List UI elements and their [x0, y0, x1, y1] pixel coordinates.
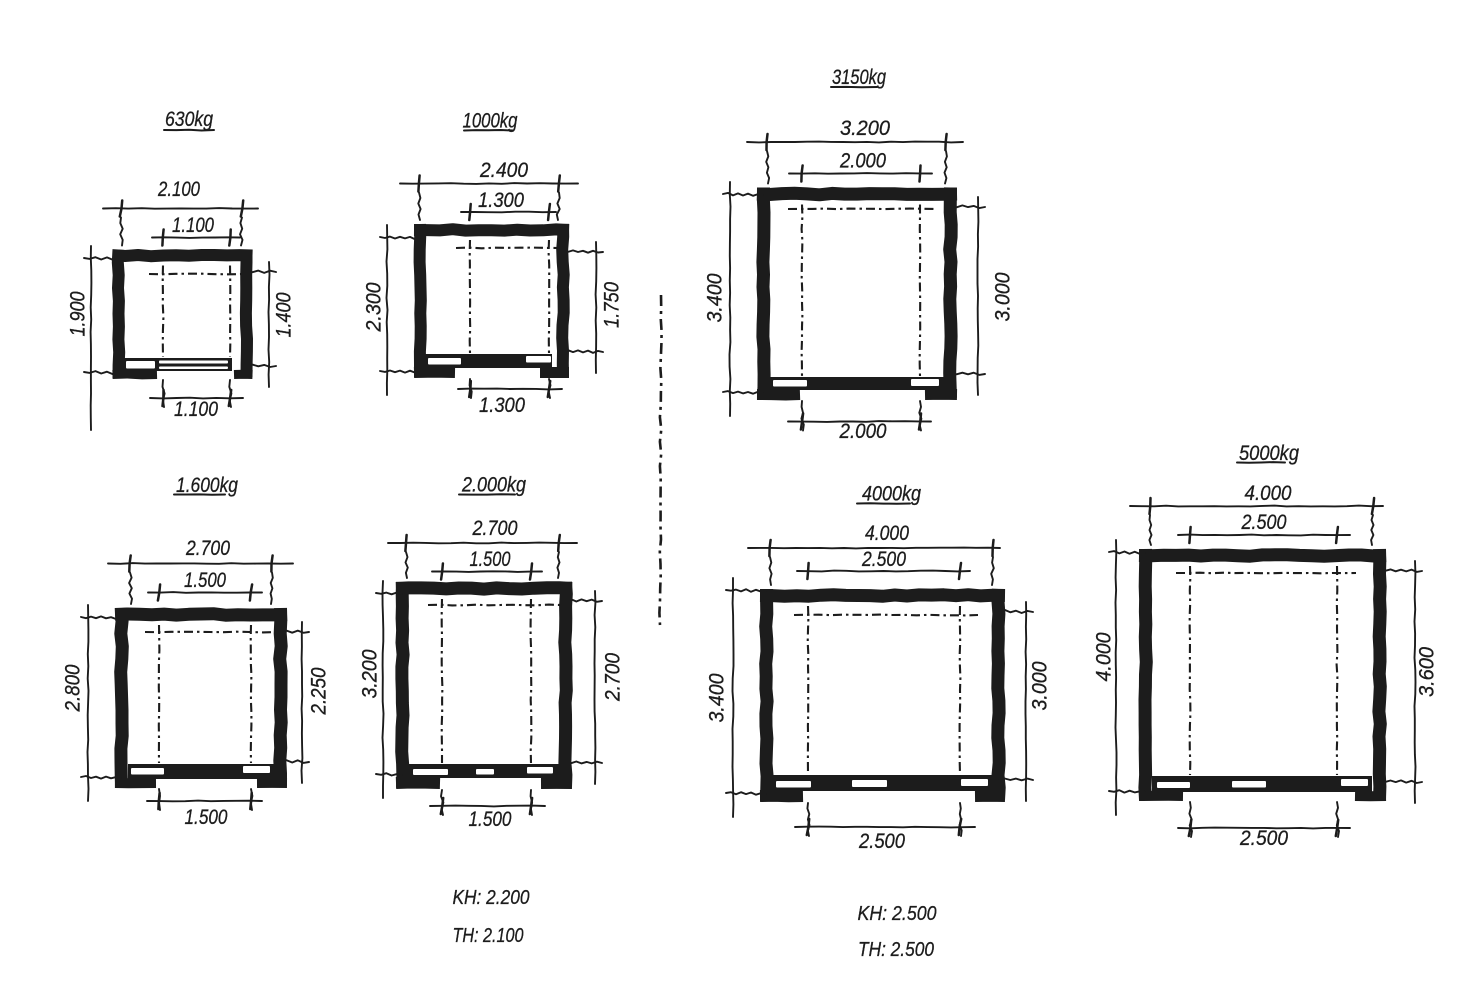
svg-text:4.000: 4.000 [865, 522, 909, 545]
svg-text:3.200: 3.200 [359, 649, 382, 698]
svg-text:4000kg: 4000kg [862, 483, 921, 506]
svg-text:TH: 2.500: TH: 2.500 [858, 938, 934, 961]
svg-text:1.300: 1.300 [478, 189, 524, 212]
svg-text:3.400: 3.400 [706, 673, 729, 722]
svg-text:KH: 2.500: KH: 2.500 [858, 902, 938, 925]
svg-text:2.700: 2.700 [472, 517, 518, 540]
svg-text:3.600: 3.600 [1416, 647, 1439, 697]
svg-text:1.900: 1.900 [67, 291, 90, 336]
svg-text:3.000: 3.000 [1029, 661, 1052, 710]
svg-text:1.100: 1.100 [172, 214, 214, 237]
svg-text:1.500: 1.500 [184, 569, 226, 592]
svg-text:1.500: 1.500 [470, 548, 511, 571]
svg-text:2.500: 2.500 [1241, 511, 1287, 534]
svg-text:2.250: 2.250 [308, 667, 331, 715]
svg-text:2.000: 2.000 [839, 150, 886, 173]
svg-text:1.300: 1.300 [479, 394, 525, 417]
svg-text:1.750: 1.750 [601, 282, 624, 328]
svg-text:2.500: 2.500 [1239, 827, 1288, 850]
svg-text:4.000: 4.000 [1093, 632, 1116, 681]
svg-text:1.500: 1.500 [185, 806, 228, 829]
svg-text:2.400: 2.400 [479, 159, 528, 182]
svg-text:630kg: 630kg [165, 108, 213, 131]
svg-text:3.400: 3.400 [704, 273, 727, 322]
svg-text:2.000: 2.000 [839, 420, 887, 443]
svg-text:TH: 2.100: TH: 2.100 [453, 924, 524, 947]
svg-text:2.500: 2.500 [858, 830, 905, 853]
svg-text:3150kg: 3150kg [832, 66, 886, 89]
svg-text:1.400: 1.400 [273, 292, 296, 337]
svg-text:2.700: 2.700 [602, 653, 625, 702]
svg-text:2.100: 2.100 [157, 178, 200, 201]
svg-text:3.200: 3.200 [840, 117, 890, 140]
svg-text:2.000kg: 2.000kg [461, 474, 526, 497]
svg-text:1.500: 1.500 [469, 808, 512, 831]
svg-text:2.500: 2.500 [861, 548, 906, 571]
svg-text:2.800: 2.800 [62, 664, 85, 712]
svg-text:1000kg: 1000kg [463, 110, 518, 133]
svg-text:3.000: 3.000 [992, 272, 1015, 321]
svg-text:1.100: 1.100 [174, 398, 218, 421]
svg-text:2.300: 2.300 [363, 282, 386, 332]
svg-text:2.700: 2.700 [185, 537, 230, 560]
svg-text:KH: 2.200: KH: 2.200 [453, 886, 531, 909]
svg-text:4.000: 4.000 [1245, 482, 1292, 505]
